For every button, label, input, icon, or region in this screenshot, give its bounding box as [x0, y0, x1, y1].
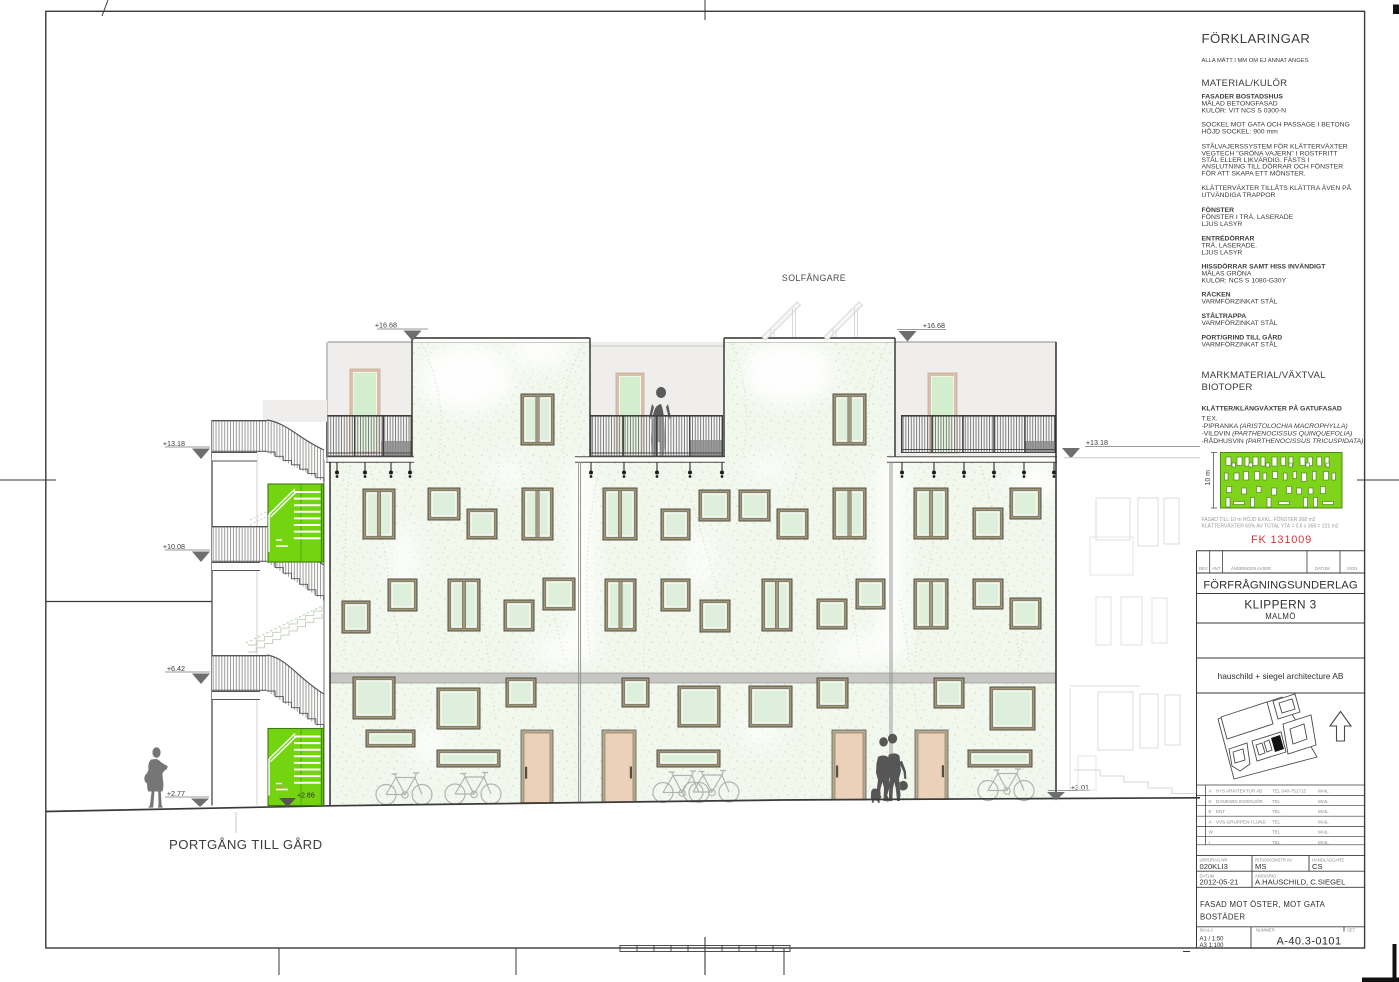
svg-text:VVS-GRUPPEN I LUND: VVS-GRUPPEN I LUND [1216, 819, 1266, 824]
svg-text:A.HAUSCHILD, C.SIEGEL: A.HAUSCHILD, C.SIEGEL [1255, 878, 1345, 887]
svg-text:MÅLAS GRÖNA: MÅLAS GRÖNA [1202, 269, 1252, 278]
svg-text:+2.77: +2.77 [167, 789, 185, 798]
svg-text:DANEWID INGENJÖR: DANEWID INGENJÖR [1216, 798, 1263, 804]
svg-text:MAIL: MAIL [1318, 830, 1329, 835]
svg-text:+13.18: +13.18 [163, 439, 185, 448]
svg-text:KLÄTTERVÄXTER 60% AV TOTAL YTA: KLÄTTERVÄXTER 60% AV TOTAL YTA = 0,6 x 3… [1202, 523, 1339, 530]
svg-text:HÖJD SOCKEL: 900 mm: HÖJD SOCKEL: 900 mm [1202, 128, 1279, 136]
svg-text:10 m: 10 m [1205, 470, 1212, 486]
svg-text:UTVÄNDIGA TRAPPOR: UTVÄNDIGA TRAPPOR [1202, 191, 1276, 199]
svg-text:FÖR ATT SKAPA ETT MÖNSTER.: FÖR ATT SKAPA ETT MÖNSTER. [1202, 170, 1306, 178]
svg-text:+13.18: +13.18 [1086, 438, 1108, 447]
svg-text:ALLA MÅTT I MM OM EJ ANNAT ANG: ALLA MÅTT I MM OM EJ ANNAT ANGES [1202, 57, 1309, 64]
svg-text:KLÄTTERVÄXTER TILLÅTS KLÄTTRA: KLÄTTERVÄXTER TILLÅTS KLÄTTRA ÄVEN PÅ [1202, 183, 1352, 192]
svg-text:DATUM: DATUM [1315, 566, 1330, 571]
svg-text:MAIL: MAIL [1318, 799, 1329, 804]
svg-text:MARKMATERIAL/VÄXTVAL: MARKMATERIAL/VÄXTVAL [1202, 370, 1327, 381]
svg-text:T.EX.: T.EX. [1202, 416, 1218, 423]
svg-text:VARMFÖRZINKAT STÅL: VARMFÖRZINKAT STÅL [1202, 340, 1278, 349]
svg-text:ENTRÉDÖRRAR: ENTRÉDÖRRAR [1202, 234, 1255, 243]
svg-text:PORT/GRIND TILL GÅRD: PORT/GRIND TILL GÅRD [1202, 333, 1283, 342]
svg-text:W: W [1209, 830, 1214, 835]
svg-text:MALMÖ: MALMÖ [1265, 612, 1296, 621]
svg-text:TEL: TEL [1272, 830, 1281, 835]
svg-text:ENT: ENT [1216, 809, 1225, 814]
svg-text:KLÄTTER/KLÄNGVÄXTER PÅ GATUFAS: KLÄTTER/KLÄNGVÄXTER PÅ GATUFASAD [1202, 404, 1342, 413]
svg-text:A1 / 1:50: A1 / 1:50 [1200, 937, 1225, 943]
svg-text:STÅLVAJERSSYSTEM FÖR KLÄTTERVÄ: STÅLVAJERSSYSTEM FÖR KLÄTTERVÄXTER [1202, 142, 1348, 151]
svg-text:TEL: TEL [1272, 840, 1281, 845]
svg-text:MAIL: MAIL [1318, 789, 1329, 794]
svg-text:KLIPPERN 3: KLIPPERN 3 [1244, 598, 1316, 612]
svg-text:PORTGÅNG TILL GÅRD: PORTGÅNG TILL GÅRD [169, 837, 323, 852]
svg-text:MAIL: MAIL [1318, 840, 1329, 845]
svg-text:CS: CS [1312, 862, 1323, 871]
svg-text:A-40.3-0101: A-40.3-0101 [1277, 936, 1342, 948]
svg-text:-PIPRANKA (ARISTOLOCHIA MACRO: -PIPRANKA (ARISTOLOCHIA MACROPHYLLA) [1202, 423, 1348, 430]
svg-text:MÅLAD BETONGFASAD: MÅLAD BETONGFASAD [1202, 99, 1278, 108]
svg-text:TRÄ, LASERADE.: TRÄ, LASERADE. [1202, 242, 1258, 250]
svg-text:+16.68: +16.68 [375, 321, 397, 330]
svg-text:FASAD TILL 10 m HÖJD EXKL. FÖN: FASAD TILL 10 m HÖJD EXKL. FÖNSTER 368 m… [1202, 516, 1316, 523]
svg-text:+3.01: +3.01 [1071, 783, 1089, 792]
svg-text:ÄNDRINGEN AVSER: ÄNDRINGEN AVSER [1231, 566, 1271, 571]
svg-text:020KLI3: 020KLI3 [1200, 862, 1228, 871]
svg-text:FASAD MOT ÖSTER, MOT GATA: FASAD MOT ÖSTER, MOT GATA [1200, 900, 1326, 909]
svg-text:VARMFÖRZINKAT STÅL: VARMFÖRZINKAT STÅL [1202, 297, 1278, 306]
svg-text:TEL: TEL [1272, 819, 1281, 824]
svg-text:NUMMER: NUMMER [1256, 928, 1275, 933]
svg-text:KULÖR: VIT NCS S 0300-N: KULÖR: VIT NCS S 0300-N [1202, 107, 1287, 115]
svg-text:MS: MS [1255, 862, 1266, 871]
svg-text:REV: REV [1199, 566, 1208, 571]
svg-text:FÖNSTER I TRÄ, LASERADE: FÖNSTER I TRÄ, LASERADE [1202, 213, 1294, 221]
svg-text:FÖRFRÅGNINGSUNDERLAG: FÖRFRÅGNINGSUNDERLAG [1203, 579, 1357, 592]
svg-text:SOLFÅNGARE: SOLFÅNGARE [782, 273, 846, 283]
svg-text:ANT: ANT [1212, 566, 1221, 571]
svg-text:FÖRKLARINGAR: FÖRKLARINGAR [1202, 31, 1311, 46]
svg-text:KULÖR: NCS S 1080-G30Y: KULÖR: NCS S 1080-G30Y [1202, 277, 1287, 285]
svg-text:H+S ARKITEKTUR AB: H+S ARKITEKTUR AB [1216, 789, 1262, 794]
svg-text:VARMFÖRZINKAT STÅL: VARMFÖRZINKAT STÅL [1202, 318, 1278, 327]
svg-text:2012-05-21: 2012-05-21 [1200, 878, 1239, 887]
svg-text:+6.42: +6.42 [167, 664, 185, 673]
svg-text:TEL 040-751715: TEL 040-751715 [1272, 789, 1306, 794]
svg-text:MAIL: MAIL [1318, 819, 1329, 824]
svg-text:-VILDVIN (PARTHENOCISSUS QUINQ: -VILDVIN (PARTHENOCISSUS QUINQUEFOLIA) [1202, 431, 1353, 438]
svg-text:SOCKEL MOT GATA OCH PASSAGE I: SOCKEL MOT GATA OCH PASSAGE I BETONG [1202, 122, 1350, 129]
svg-text:STÅLTRAPPA: STÅLTRAPPA [1202, 311, 1247, 320]
svg-text:ANSLUTNING TILL DÖRRAR OCH FÖN: ANSLUTNING TILL DÖRRAR OCH FÖNSTER [1202, 163, 1344, 171]
svg-text:LJUS LASYR: LJUS LASYR [1202, 250, 1243, 257]
svg-text:MAIL: MAIL [1318, 809, 1329, 814]
svg-text:FASADER BOSTADSHUS: FASADER BOSTADSHUS [1202, 94, 1284, 101]
svg-text:RÄCKEN: RÄCKEN [1202, 291, 1231, 299]
svg-text:+16.68: +16.68 [923, 321, 945, 330]
svg-text:+2.86: +2.86 [297, 793, 315, 800]
svg-text:SKALA: SKALA [1200, 928, 1214, 933]
svg-text:A3 1:100: A3 1:100 [1200, 943, 1225, 949]
svg-text:HISSDÖRRAR SAMT HISS INVÄNDIGT: HISSDÖRRAR SAMT HISS INVÄNDIGT [1202, 262, 1327, 271]
svg-text:FÖNSTER: FÖNSTER [1202, 205, 1235, 214]
svg-text:TEL: TEL [1272, 799, 1281, 804]
svg-text:MATERIAL/KULÖR: MATERIAL/KULÖR [1202, 78, 1288, 89]
svg-text:SET: SET [1347, 928, 1356, 933]
svg-text:SIGN: SIGN [1347, 566, 1357, 571]
svg-text:LJUS LASYR: LJUS LASYR [1202, 221, 1243, 228]
svg-text:FK 131009: FK 131009 [1251, 534, 1312, 546]
svg-text:+10.08: +10.08 [163, 542, 185, 551]
svg-text:E: E [1209, 809, 1212, 814]
svg-text:BIOTOPER: BIOTOPER [1202, 382, 1253, 393]
svg-text:-RÅDHUSVIN (PARTHENOCISSUS TRI: -RÅDHUSVIN (PARTHENOCISSUS TRICUSPIDATA) [1202, 436, 1364, 445]
svg-text:hauschild + siegel architectu: hauschild + siegel architecture AB [1218, 671, 1344, 681]
svg-text:I: I [1209, 840, 1210, 845]
svg-text:BOSTÄDER: BOSTÄDER [1200, 913, 1245, 922]
svg-text:TEL: TEL [1272, 809, 1281, 814]
